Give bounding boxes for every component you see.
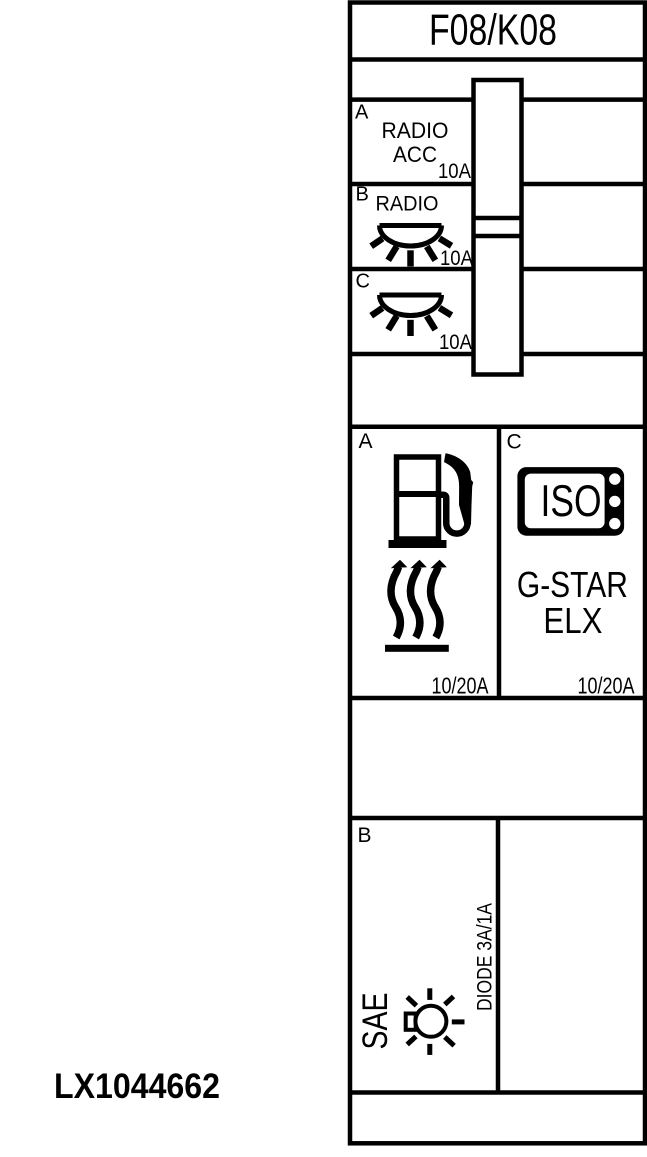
svg-text:B: B <box>358 824 372 847</box>
svg-text:LX1044662: LX1044662 <box>54 1067 220 1106</box>
svg-text:ACC: ACC <box>393 142 437 167</box>
svg-text:G-STAR: G-STAR <box>517 564 628 605</box>
svg-text:10A: 10A <box>439 330 473 354</box>
svg-text:A: A <box>359 430 373 453</box>
svg-text:10A: 10A <box>440 246 474 270</box>
svg-text:B: B <box>356 184 369 206</box>
svg-text:DIODE 3A/1A: DIODE 3A/1A <box>474 903 497 1011</box>
svg-text:SAE: SAE <box>355 993 395 1050</box>
svg-text:F08/K08: F08/K08 <box>429 7 557 55</box>
svg-text:10A: 10A <box>438 159 472 183</box>
svg-text:C: C <box>507 431 522 454</box>
svg-text:ISO: ISO <box>541 477 602 526</box>
svg-text:RADIO: RADIO <box>382 118 449 143</box>
svg-text:C: C <box>356 271 370 293</box>
svg-text:A: A <box>355 102 369 124</box>
svg-text:10/20A: 10/20A <box>432 673 490 699</box>
svg-text:ELX: ELX <box>543 600 602 641</box>
svg-text:RADIO: RADIO <box>376 193 439 216</box>
svg-text:10/20A: 10/20A <box>578 673 636 699</box>
